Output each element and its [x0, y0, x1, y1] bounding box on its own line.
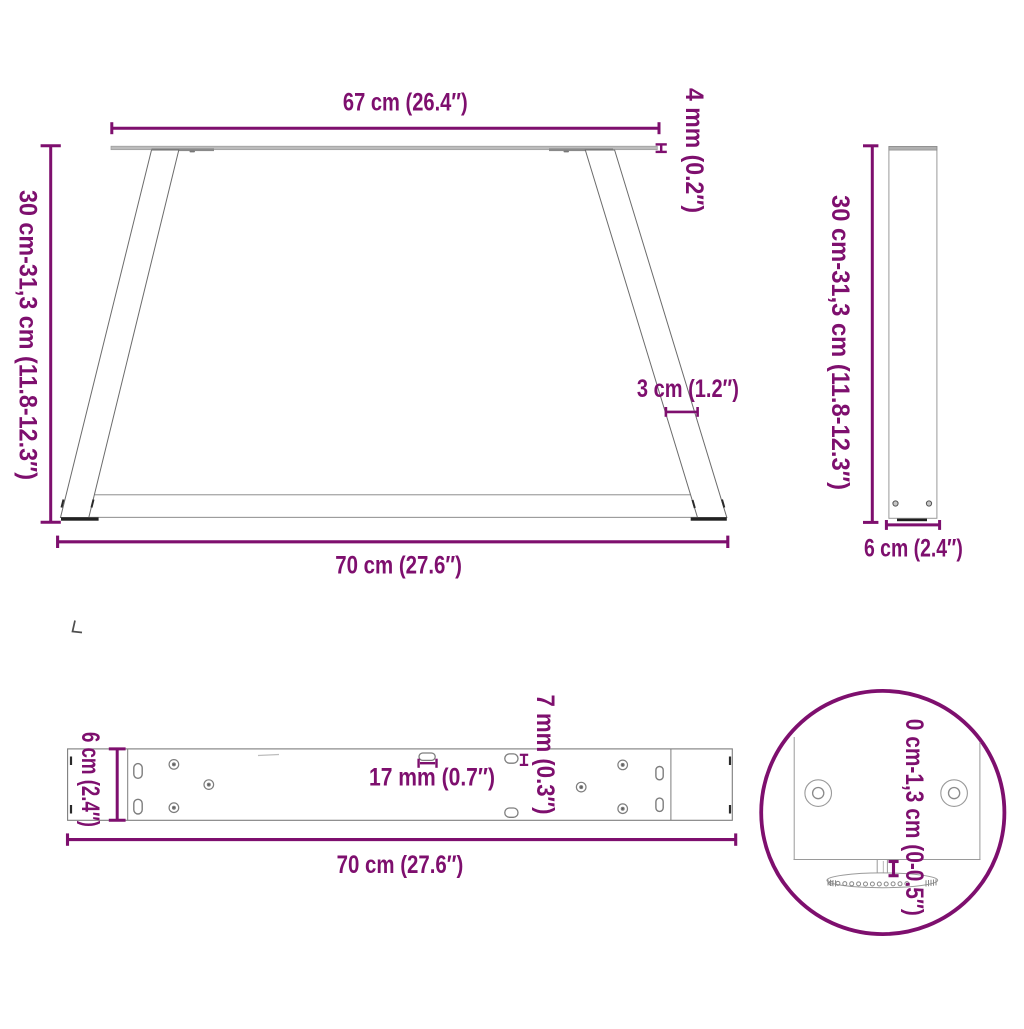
- svg-text:3 cm (1.2″): 3 cm (1.2″): [637, 375, 739, 403]
- svg-text:67 cm (26.4″): 67 cm (26.4″): [343, 88, 468, 116]
- svg-text:0 cm-1,3 cm (0-0.5″): 0 cm-1,3 cm (0-0.5″): [900, 719, 928, 916]
- svg-text:30 cm-31,3 cm (11.8-12.3″): 30 cm-31,3 cm (11.8-12.3″): [826, 195, 854, 490]
- svg-text:6 cm (2.4″): 6 cm (2.4″): [76, 732, 104, 827]
- svg-text:30 cm-31,3 cm (11.8-12.3″): 30 cm-31,3 cm (11.8-12.3″): [14, 190, 42, 480]
- svg-text:70 cm (27.6″): 70 cm (27.6″): [335, 551, 462, 579]
- svg-text:4 mm (0.2″): 4 mm (0.2″): [680, 88, 708, 213]
- svg-text:6 cm (2.4″): 6 cm (2.4″): [864, 535, 963, 563]
- svg-text:70 cm (27.6″): 70 cm (27.6″): [337, 851, 464, 879]
- svg-text:17 mm (0.7″): 17 mm (0.7″): [369, 763, 495, 791]
- svg-text:7 mm (0.3″): 7 mm (0.3″): [531, 695, 559, 815]
